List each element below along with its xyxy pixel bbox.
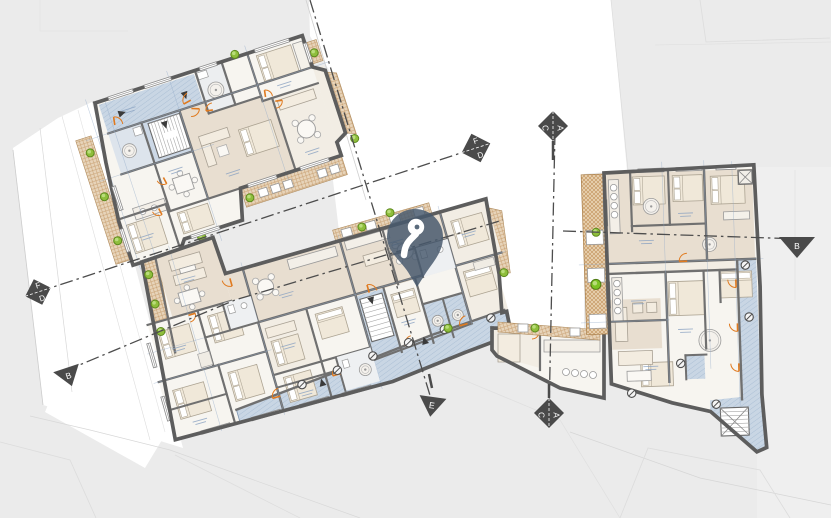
svg-text:A: A [551, 412, 560, 418]
svg-text:C: C [536, 412, 545, 418]
svg-text:A: A [555, 125, 564, 131]
svg-text:B: B [794, 241, 800, 251]
svg-text:C: C [540, 125, 549, 131]
